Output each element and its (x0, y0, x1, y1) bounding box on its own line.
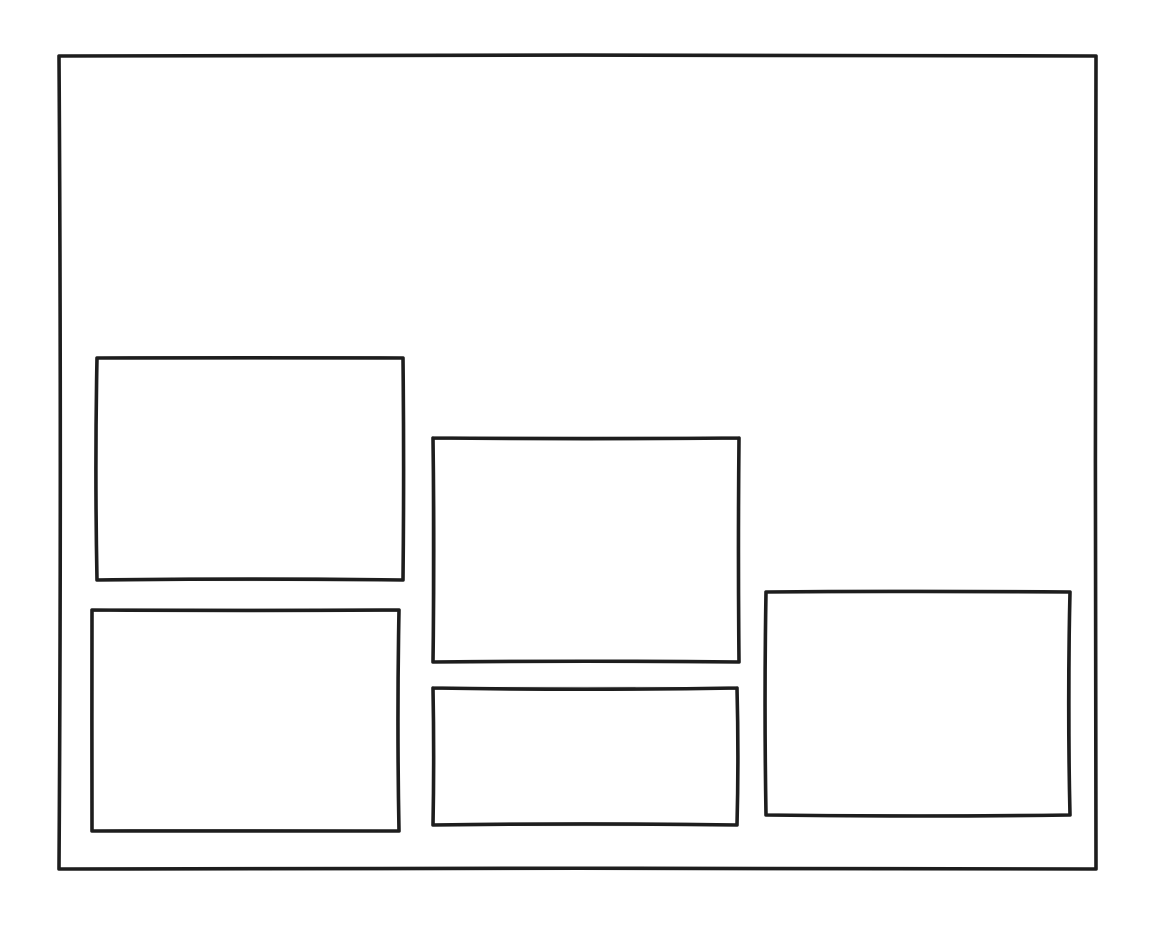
box-middle-bottom (433, 688, 738, 825)
box-bottom-left (92, 610, 399, 831)
outer-frame-overdraw (59, 56, 1096, 869)
wireframe-canvas (0, 0, 1150, 942)
box-bottom-left-overdraw (92, 609, 399, 831)
box-top-left-overdraw (97, 358, 404, 581)
sketch-drawing (0, 0, 1150, 942)
box-right-overdraw (765, 591, 1071, 815)
box-middle-bottom-overdraw (433, 687, 737, 825)
outer-frame (59, 55, 1096, 869)
box-middle-top (433, 438, 739, 662)
box-right (765, 591, 1070, 816)
box-top-left (96, 358, 404, 580)
box-middle-top-overdraw (432, 437, 739, 662)
